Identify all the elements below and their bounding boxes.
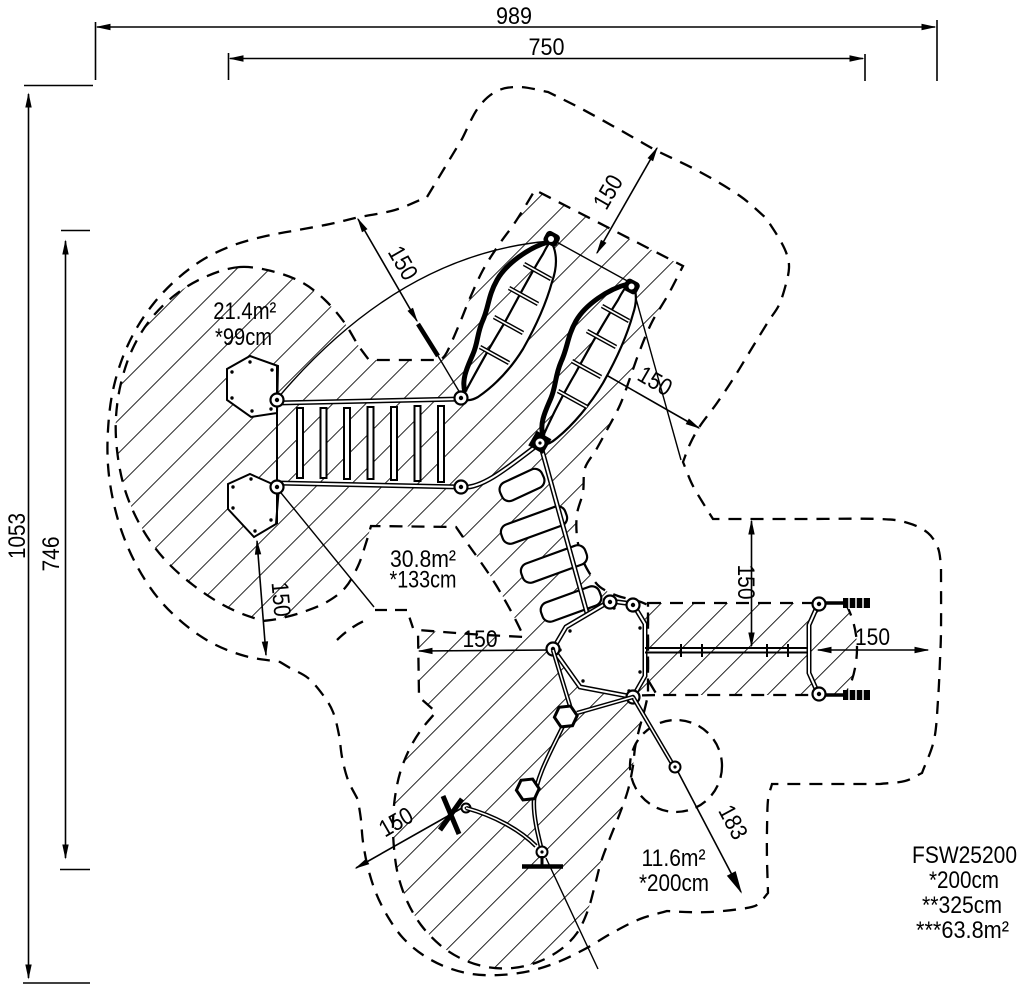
svg-text:**325cm: **325cm: [922, 892, 1002, 919]
svg-text:*99cm: *99cm: [215, 324, 272, 351]
svg-text:183: 183: [712, 801, 752, 845]
svg-text:*200cm: *200cm: [929, 867, 999, 894]
svg-text:750: 750: [529, 34, 565, 61]
svg-text:21.4m²: 21.4m²: [213, 298, 276, 325]
svg-text:1053: 1053: [4, 513, 31, 559]
svg-text:150: 150: [265, 581, 295, 618]
svg-text:989: 989: [496, 3, 532, 30]
svg-text:150: 150: [855, 624, 890, 651]
svg-text:*133cm: *133cm: [390, 567, 457, 594]
svg-text:150: 150: [732, 565, 759, 600]
svg-text:11.6m²: 11.6m²: [642, 845, 706, 872]
svg-text:FSW25200: FSW25200: [912, 842, 1017, 869]
svg-text:746: 746: [38, 537, 65, 572]
svg-text:***63.8m²: ***63.8m²: [916, 917, 1009, 944]
svg-text:*200cm: *200cm: [639, 870, 709, 897]
svg-text:150: 150: [463, 626, 498, 653]
svg-text:150: 150: [382, 241, 423, 285]
